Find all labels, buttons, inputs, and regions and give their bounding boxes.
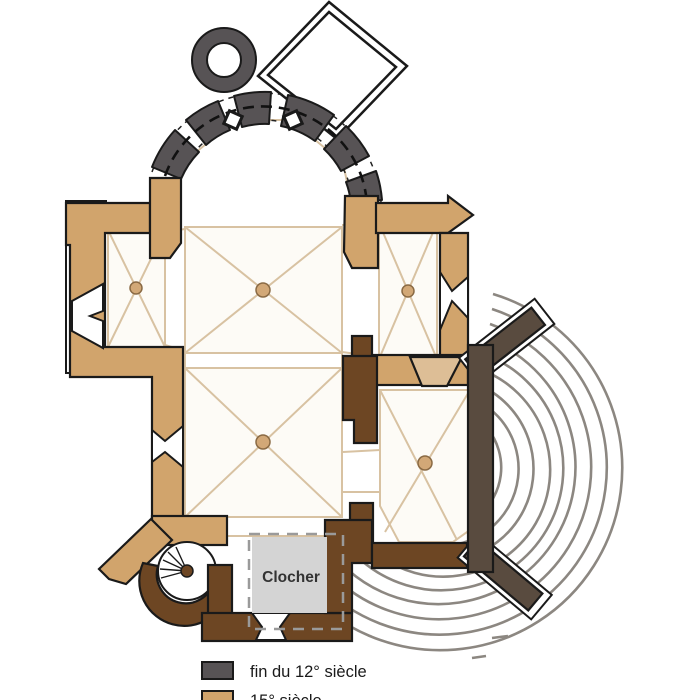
legend-label-12th: fin du 12° siècle [250, 663, 367, 681]
apse-interior-polygon [168, 120, 358, 233]
stair-newel [181, 565, 193, 577]
wall-brown-crossing-east [343, 356, 377, 443]
wall-taupe-east [458, 299, 555, 620]
wall-north-east-arrow [376, 196, 473, 233]
legend-swatch-12th [202, 662, 233, 679]
church-floor-plan: Clocher fin du 12° siècle 15° siècle [0, 0, 700, 700]
plan-svg: Clocher fin du 12° siècle 15° siècle [0, 0, 700, 700]
wall-brown-southwest [208, 565, 232, 615]
legend-item-15th-century: 15° siècle [202, 691, 322, 700]
wall-brown-neck [352, 336, 372, 358]
legend-item-12th-century: fin du 12° siècle [202, 662, 367, 681]
legend: fin du 12° siècle 15° siècle [202, 662, 367, 700]
bay-nave [185, 368, 342, 517]
turret-ring [192, 28, 256, 92]
wall-brown-southeast-arm [372, 543, 467, 568]
bay-chapel [380, 390, 470, 542]
wall-apse-pier-left [150, 178, 181, 258]
legend-swatch-15th [202, 691, 233, 700]
wall-apse-pier-right [344, 196, 378, 268]
wall-taupe-bar [468, 345, 493, 572]
legend-label-15th: 15° siècle [250, 692, 322, 700]
clocher-label: Clocher [262, 569, 320, 586]
bay-crossing [185, 227, 342, 353]
bay-south-transept [379, 223, 437, 359]
